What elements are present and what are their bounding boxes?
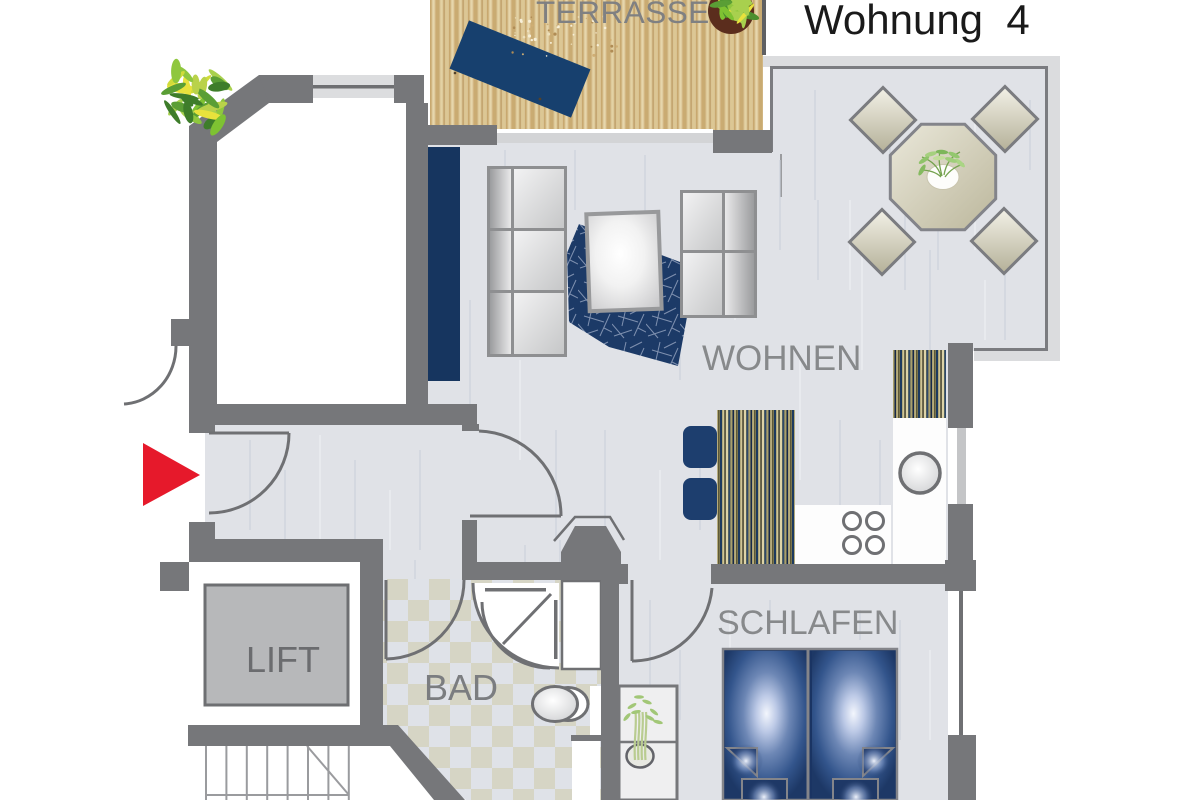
svg-text:WOHNEN: WOHNEN <box>702 339 861 378</box>
svg-text:SCHLAFEN: SCHLAFEN <box>717 604 898 642</box>
svg-text:BAD: BAD <box>424 667 498 708</box>
svg-text:Wohnung 4: Wohnung 4 <box>804 0 1030 43</box>
svg-text:LIFT: LIFT <box>246 639 320 680</box>
svg-text:TERRASSE: TERRASSE <box>536 0 710 30</box>
